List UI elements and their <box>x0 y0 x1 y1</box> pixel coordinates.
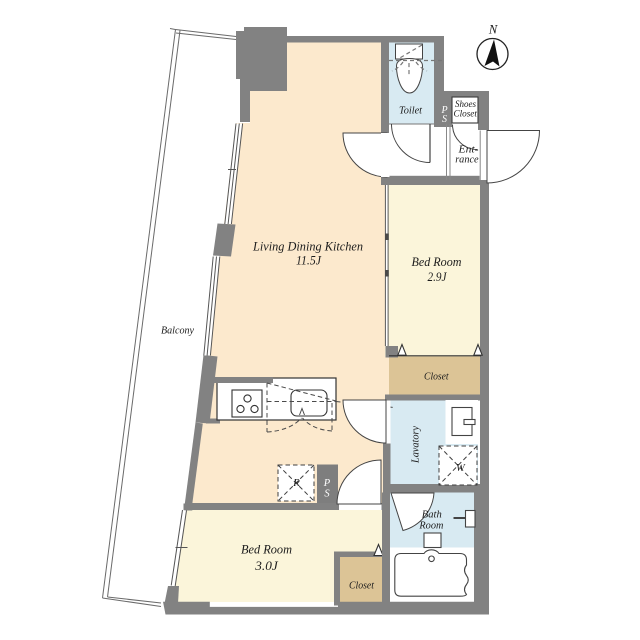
svg-text:P: P <box>323 478 331 489</box>
svg-text:3.0J: 3.0J <box>254 559 279 573</box>
svg-text:Closet: Closet <box>453 110 477 120</box>
svg-text:Living Dining Kitchen: Living Dining Kitchen <box>252 240 363 254</box>
svg-text:Bed Room: Bed Room <box>412 255 462 269</box>
svg-text:Bed Room: Bed Room <box>241 543 292 557</box>
svg-text:R: R <box>292 477 300 489</box>
svg-text:Lavatory: Lavatory <box>410 425 421 464</box>
svg-text:rance: rance <box>455 155 479 166</box>
svg-text:W: W <box>456 463 466 474</box>
svg-text:S: S <box>442 114 447 125</box>
svg-text:Closet: Closet <box>424 371 449 383</box>
svg-text:Shoes: Shoes <box>455 100 476 110</box>
svg-text:S: S <box>324 489 330 500</box>
svg-text:N: N <box>488 23 498 37</box>
svg-text:Bath: Bath <box>422 510 442 521</box>
svg-text:Toilet: Toilet <box>399 105 423 117</box>
svg-text:Room: Room <box>418 521 443 532</box>
svg-text:11.5J: 11.5J <box>296 254 322 268</box>
svg-text:Closet: Closet <box>349 580 375 592</box>
svg-text:2.9J: 2.9J <box>428 270 448 284</box>
svg-text:Balcony: Balcony <box>161 326 194 337</box>
